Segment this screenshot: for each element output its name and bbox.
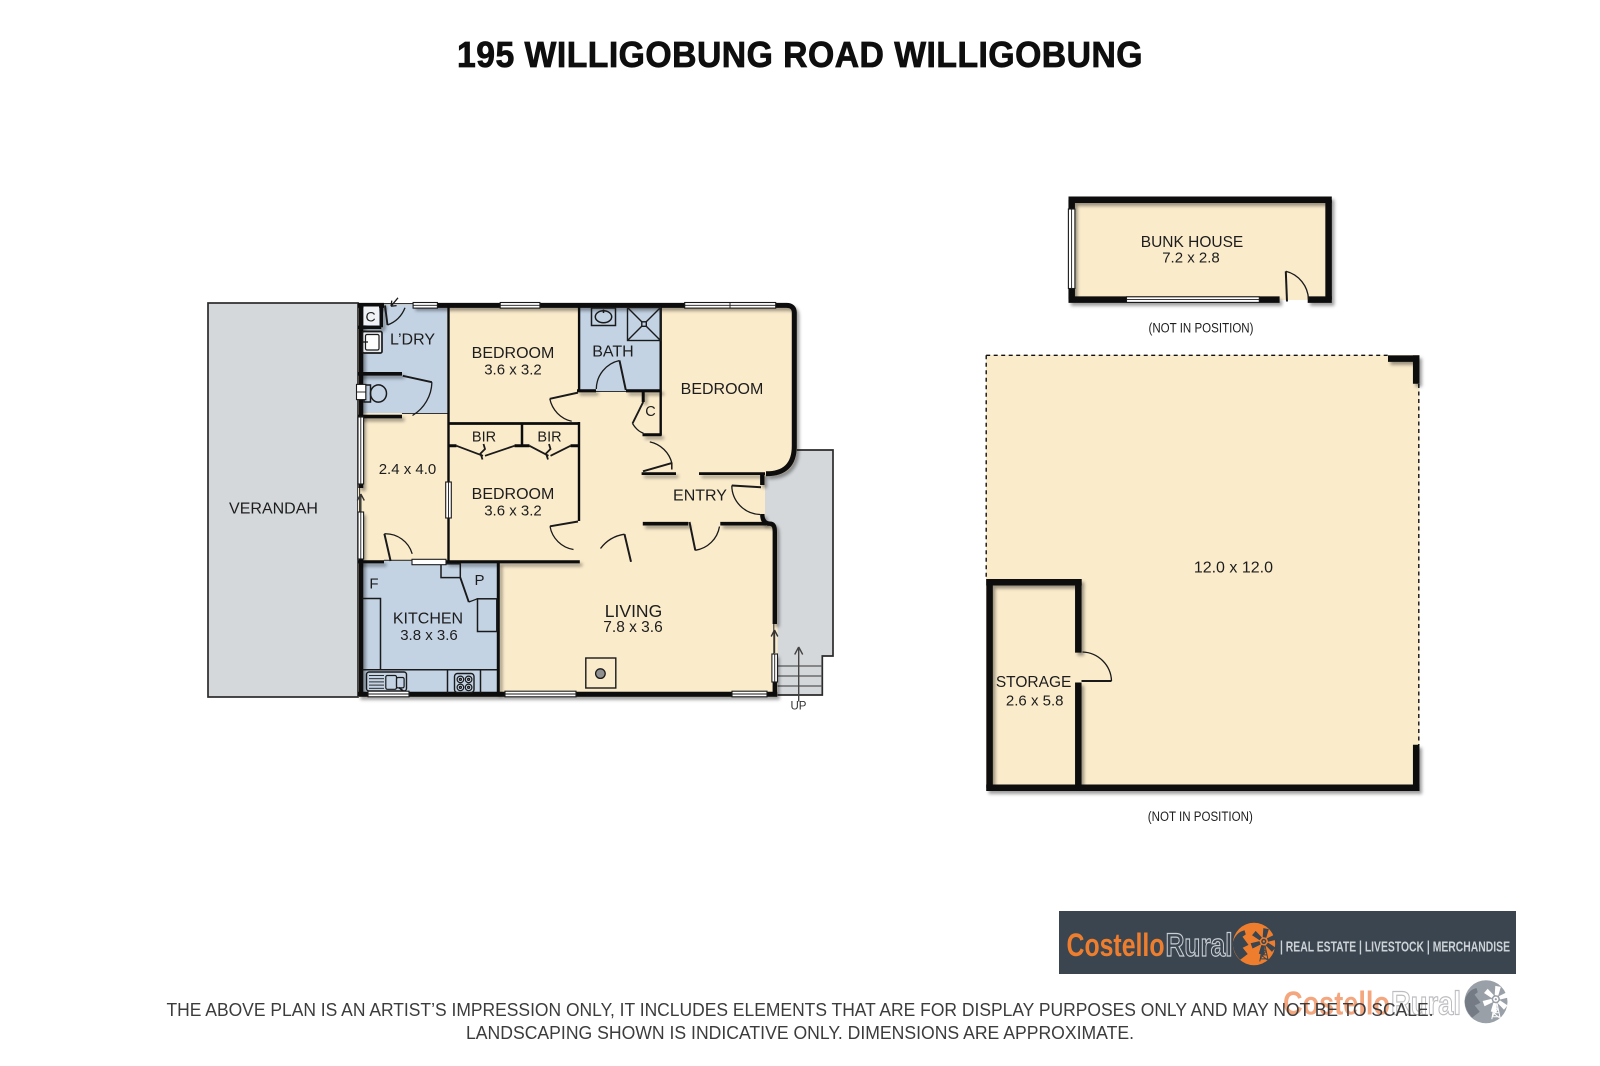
svg-text:| REAL ESTATE | LIVESTOCK | ME: | REAL ESTATE | LIVESTOCK | MERCHANDISE: [1280, 939, 1510, 956]
svg-text:Rural: Rural: [1166, 927, 1233, 963]
svg-text:BUNK HOUSE: BUNK HOUSE: [1141, 234, 1244, 251]
svg-text:2.4 x 4.0: 2.4 x 4.0: [379, 461, 437, 478]
svg-text:BIR: BIR: [537, 430, 561, 446]
svg-text:L’DRY: L’DRY: [390, 332, 435, 349]
svg-text:VERANDAH: VERANDAH: [229, 501, 318, 518]
svg-text:BEDROOM: BEDROOM: [681, 381, 764, 398]
svg-text:195 WILLIGOBUNG ROAD WILLIGOBU: 195 WILLIGOBUNG ROAD WILLIGOBUNG: [457, 34, 1143, 75]
svg-text:C: C: [645, 404, 655, 420]
svg-text:7.8 x 3.6: 7.8 x 3.6: [603, 619, 662, 636]
svg-text:LANDSCAPING SHOWN IS INDICATIV: LANDSCAPING SHOWN IS INDICATIVE ONLY. DI…: [466, 1023, 1134, 1043]
svg-text:KITCHEN: KITCHEN: [393, 611, 463, 628]
svg-text:(NOT IN POSITION): (NOT IN POSITION): [1149, 321, 1254, 336]
svg-text:12.0 x 12.0: 12.0 x 12.0: [1194, 560, 1273, 577]
svg-text:ENTRY: ENTRY: [673, 488, 727, 505]
svg-text:UP: UP: [791, 701, 807, 713]
svg-text:P: P: [474, 572, 484, 589]
svg-text:F: F: [369, 576, 378, 593]
svg-text:7.2 x 2.8: 7.2 x 2.8: [1162, 250, 1220, 267]
svg-text:LIVING: LIVING: [605, 601, 662, 621]
svg-text:2.6 x 5.8: 2.6 x 5.8: [1006, 693, 1064, 710]
svg-text:BIR: BIR: [472, 430, 496, 446]
svg-text:3.6 x 3.2: 3.6 x 3.2: [484, 503, 542, 520]
svg-text:(NOT IN POSITION): (NOT IN POSITION): [1148, 809, 1253, 824]
svg-text:THE ABOVE PLAN IS AN ARTIST’S: THE ABOVE PLAN IS AN ARTIST’S IMPRESSION…: [167, 1000, 1434, 1020]
svg-text:Costello: Costello: [1067, 927, 1165, 963]
svg-text:BEDROOM: BEDROOM: [472, 345, 555, 362]
svg-text:BEDROOM: BEDROOM: [472, 486, 555, 503]
svg-text:STORAGE: STORAGE: [996, 674, 1072, 691]
svg-text:3.8 x 3.6: 3.8 x 3.6: [400, 627, 458, 644]
svg-text:BATH: BATH: [592, 344, 633, 361]
svg-text:C: C: [365, 309, 375, 325]
svg-text:3.6 x 3.2: 3.6 x 3.2: [484, 362, 542, 379]
